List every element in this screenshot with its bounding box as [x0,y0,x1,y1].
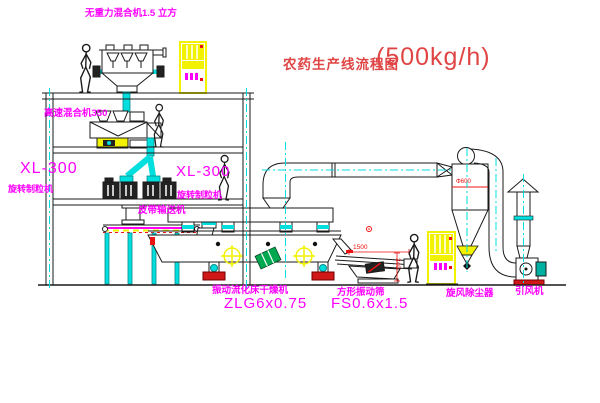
rotary-granulators [103,178,176,199]
label-fan: 引风机 [515,287,544,297]
worker-figure [79,44,91,92]
label-granulator-right-model: XL-300 [176,164,230,179]
dimension-cyclone-diameter: Φ600 [456,179,471,185]
dimension-screen-length: 1500 [353,244,367,251]
control-cabinet-bottom [426,232,458,284]
label-granulator-left-model: XL-300 [20,161,78,177]
vibrating-screen [335,227,417,284]
label-granulator-left-name: 旋转制粒机 [8,185,53,194]
dimension-screen-height: 340 [394,258,401,269]
diagram-title-capacity: (500kg/h) [376,43,491,72]
label-belt-conveyor: 皮带输送机 [138,206,186,216]
control-cabinet-top [178,42,208,93]
label-granulator-right-name: 旋转制粒机 [177,191,222,200]
gravity-free-mixer [93,45,166,112]
label-gravity-mixer: 无重力混合机1.5 立方 [85,9,177,19]
induced-draft-fan [514,258,546,285]
worker-figure [407,234,419,282]
label-high-speed-mixer: 高速混合机350 [44,109,107,119]
cad-flow-diagram: 农药生产线流程图 (500kg/h) 无重力混合机1.5 立方 高速混合机350… [0,0,600,403]
label-dryer-model: ZLG6x0.75 [224,296,307,311]
label-screen-model: FS0.6x1.5 [331,296,408,311]
indicator-lights [185,73,198,80]
indicator-lights [434,263,447,270]
label-cyclone: 旋风除尘器 [446,289,494,299]
